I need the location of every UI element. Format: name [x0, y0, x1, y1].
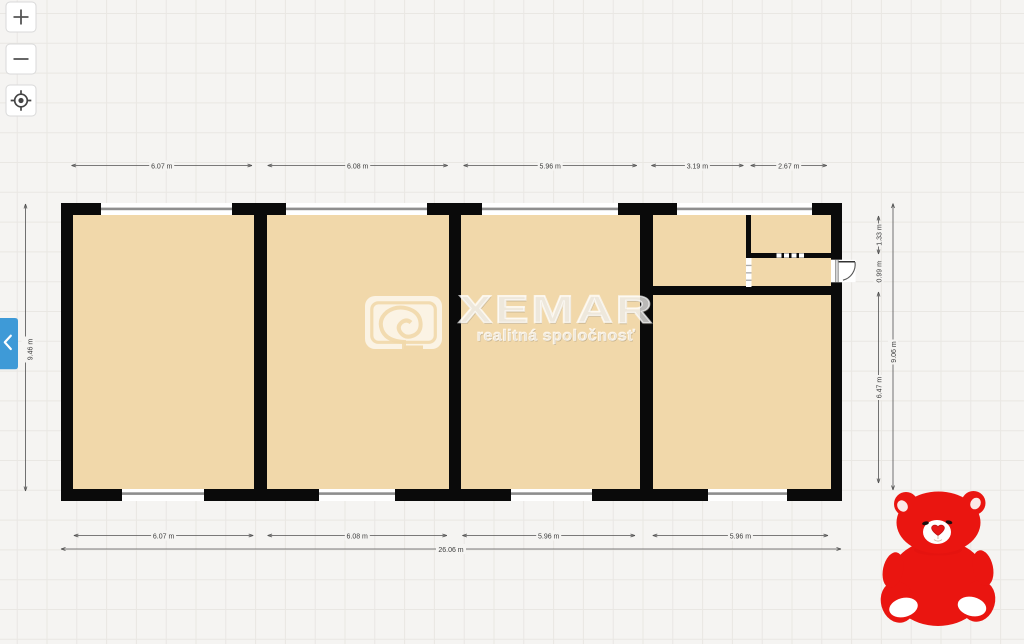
svg-text:6.08 m: 6.08 m [347, 163, 369, 170]
svg-text:6.07 m: 6.07 m [151, 163, 173, 170]
svg-text:5.96 m: 5.96 m [539, 163, 561, 170]
svg-text:0.99 m: 0.99 m [876, 261, 883, 283]
svg-text:6.47 m: 6.47 m [876, 377, 883, 399]
svg-text:2.67 m: 2.67 m [778, 163, 800, 170]
svg-text:9.06 m: 9.06 m [891, 341, 898, 363]
svg-text:XEMAR: XEMAR [458, 289, 655, 332]
svg-text:realitná spoločnosť: realitná spoločnosť [477, 328, 636, 345]
svg-text:6.08 m: 6.08 m [346, 533, 368, 540]
svg-text:1.33 m: 1.33 m [876, 224, 883, 246]
svg-text:5.96 m: 5.96 m [538, 533, 560, 540]
svg-text:9.46 m: 9.46 m [27, 339, 34, 361]
svg-text:26.06 m: 26.06 m [438, 547, 463, 554]
svg-text:5.96 m: 5.96 m [730, 533, 752, 540]
svg-text:6.07 m: 6.07 m [153, 533, 175, 540]
svg-text:3.19 m: 3.19 m [687, 163, 709, 170]
